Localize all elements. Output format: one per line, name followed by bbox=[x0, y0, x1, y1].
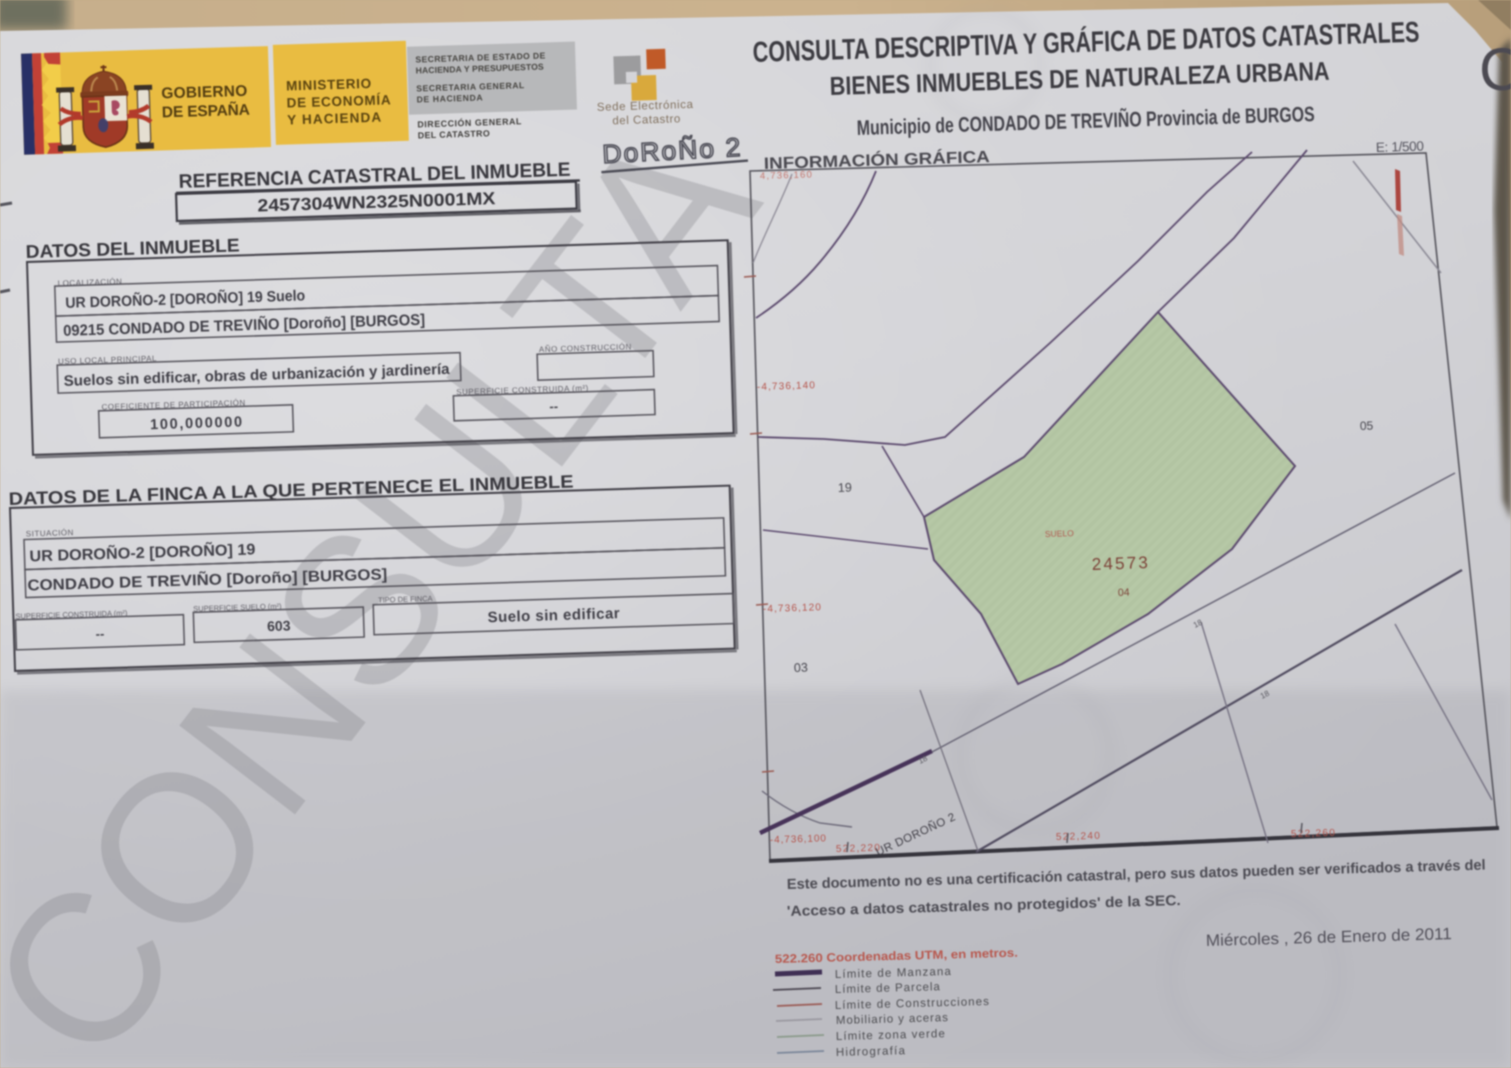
svg-text:DE HACIENDA: DE HACIENDA bbox=[416, 92, 482, 104]
svg-text:-4,736,120: -4,736,120 bbox=[763, 602, 822, 615]
svg-text:--: -- bbox=[549, 399, 558, 414]
svg-text:-4,736,140: -4,736,140 bbox=[757, 380, 816, 393]
svg-text:04: 04 bbox=[1118, 587, 1130, 599]
svg-text:4,736,160: 4,736,160 bbox=[760, 169, 812, 182]
svg-text:100,000000: 100,000000 bbox=[150, 414, 242, 433]
svg-text:522,260: 522,260 bbox=[1291, 828, 1336, 840]
svg-text:-4,736,100: -4,736,100 bbox=[770, 833, 827, 846]
svg-text:del Catastro: del Catastro bbox=[612, 113, 680, 127]
svg-text:19: 19 bbox=[838, 481, 852, 495]
svg-text:DE ESPAÑA: DE ESPAÑA bbox=[162, 101, 251, 122]
svg-text:03: 03 bbox=[794, 661, 808, 675]
svg-text:SITUACIÓN: SITUACIÓN bbox=[26, 528, 74, 538]
svg-text:GOBIERNO: GOBIERNO bbox=[161, 83, 247, 103]
svg-text:05: 05 bbox=[1360, 419, 1374, 433]
svg-text:Y HACIENDA: Y HACIENDA bbox=[287, 110, 382, 128]
svg-text:--: -- bbox=[95, 626, 104, 641]
svg-text:522,240: 522,240 bbox=[1056, 831, 1101, 843]
svg-text:SUELO: SUELO bbox=[1045, 528, 1075, 539]
svg-text:C: C bbox=[1479, 36, 1511, 103]
svg-text:24573: 24573 bbox=[1091, 553, 1148, 574]
svg-text:MINISTERIO: MINISTERIO bbox=[286, 76, 371, 94]
svg-text:603: 603 bbox=[267, 617, 291, 634]
svg-text:Hidrografía: Hidrografía bbox=[836, 1045, 906, 1059]
